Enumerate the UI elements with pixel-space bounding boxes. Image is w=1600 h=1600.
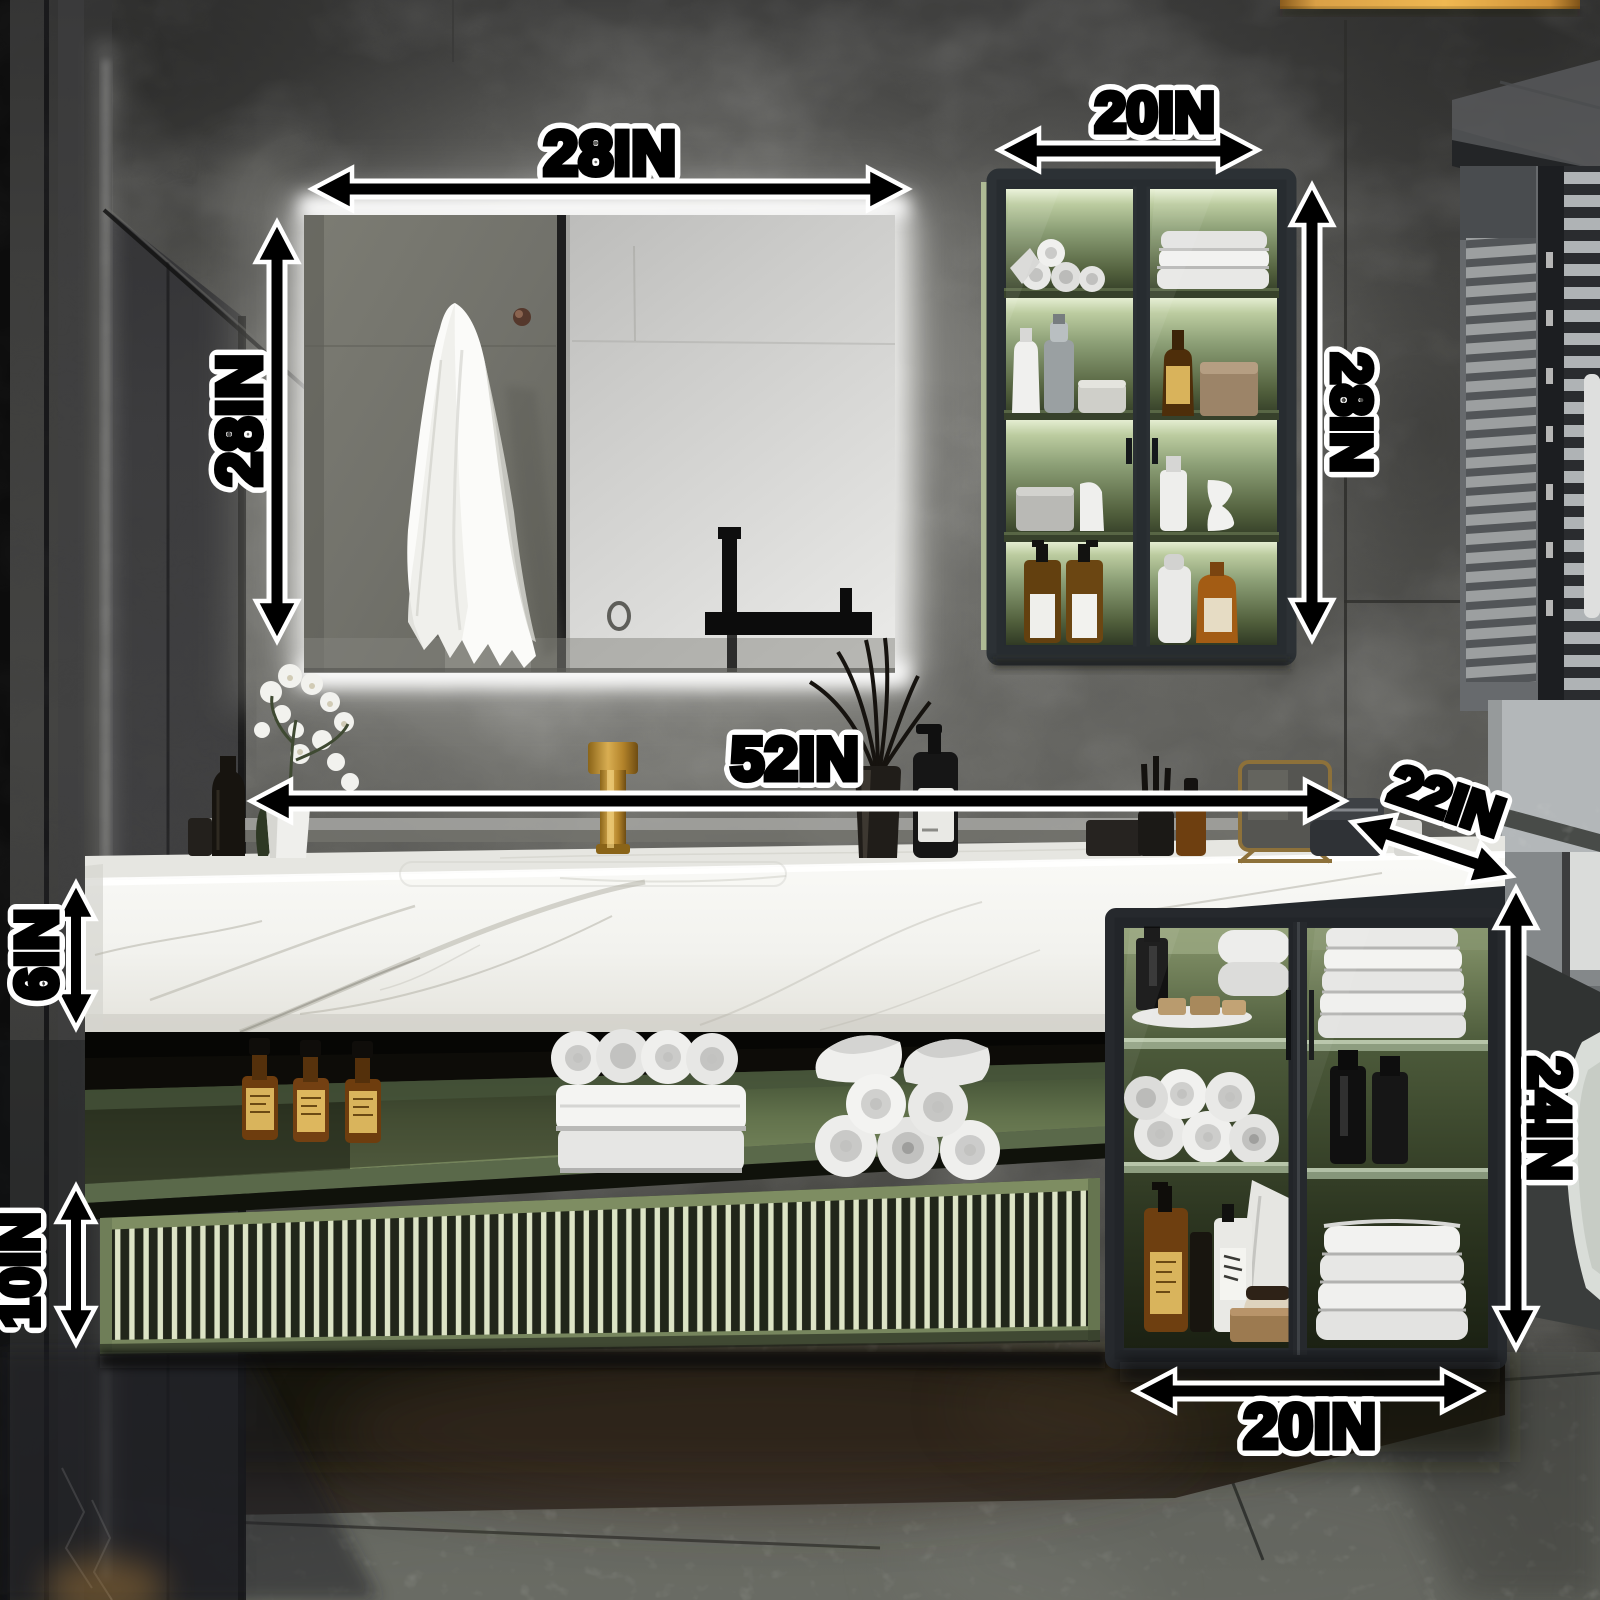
svg-text:28IN: 28IN: [206, 354, 275, 487]
svg-text:20IN: 20IN: [1095, 81, 1215, 144]
svg-text:24IN: 24IN: [1517, 1057, 1582, 1182]
svg-text:6IN: 6IN: [5, 908, 70, 1000]
svg-text:10IN: 10IN: [0, 1212, 50, 1328]
svg-text:20IN: 20IN: [1244, 1393, 1377, 1462]
svg-text:28IN: 28IN: [1321, 353, 1384, 473]
svg-text:52IN: 52IN: [731, 726, 860, 793]
svg-text:28IN: 28IN: [544, 120, 677, 189]
